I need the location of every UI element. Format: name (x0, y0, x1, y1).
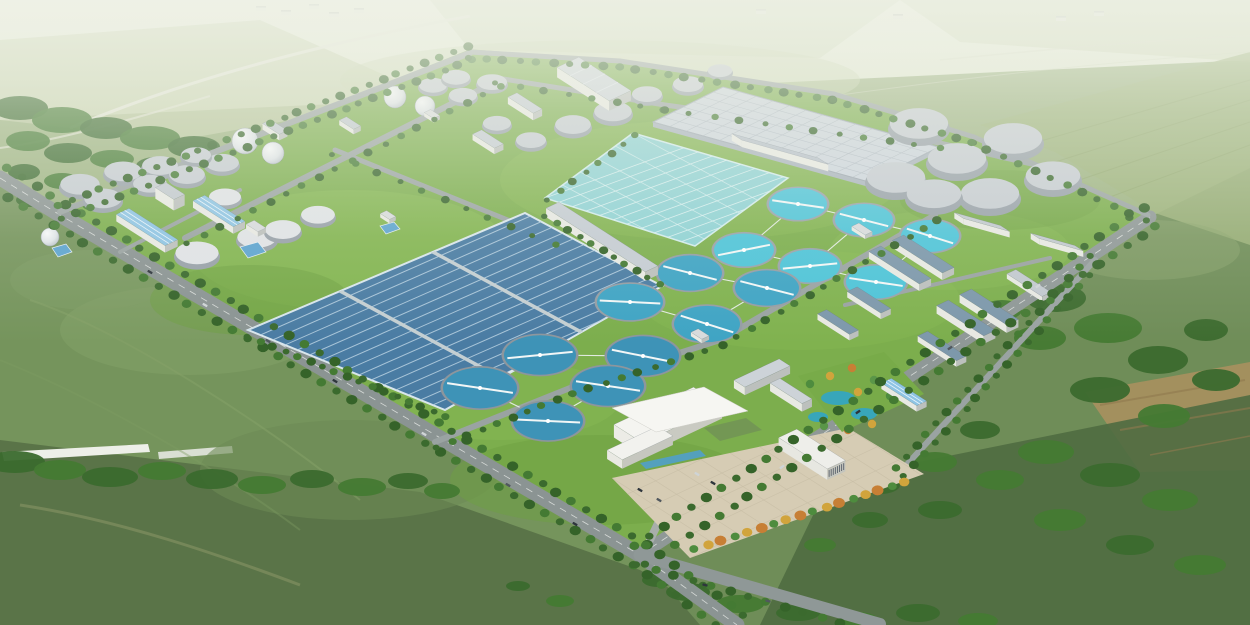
tree (563, 226, 572, 234)
tree (270, 133, 277, 139)
tree (713, 79, 722, 86)
tree (300, 369, 311, 379)
tree (905, 119, 915, 128)
tree (552, 241, 559, 247)
tree (1054, 306, 1061, 312)
tree (651, 566, 660, 574)
tree (182, 152, 191, 159)
tree (510, 492, 518, 499)
distant-building-roof (1094, 11, 1104, 13)
tree (669, 561, 680, 571)
distant-building-roof (309, 4, 319, 6)
tree (69, 197, 76, 203)
tree (993, 373, 1000, 379)
forest-clump (976, 470, 1024, 490)
tree (66, 231, 74, 238)
tree (1093, 196, 1100, 202)
tree (725, 587, 736, 596)
tree (1022, 281, 1032, 289)
tree (434, 418, 444, 426)
tree (2, 193, 13, 203)
storage-tank-top (708, 64, 732, 77)
tree (355, 100, 362, 106)
tree (1046, 297, 1055, 304)
tree (941, 427, 951, 436)
tree (802, 454, 812, 462)
tree (293, 353, 301, 360)
tree (668, 571, 679, 580)
storage-tank-top (175, 241, 218, 264)
forest-clump (1138, 404, 1190, 428)
tree (697, 611, 707, 619)
tree (718, 341, 728, 349)
tree (599, 544, 607, 551)
tree (537, 402, 545, 409)
tree (238, 305, 249, 315)
tree (818, 445, 826, 452)
tree (934, 367, 944, 375)
tree (138, 169, 147, 176)
tree (270, 323, 278, 330)
tree (553, 220, 561, 227)
clarifier-hub (688, 271, 692, 275)
tree (431, 117, 437, 122)
clarifier-hub (742, 248, 746, 252)
tree (283, 127, 293, 136)
tree (739, 612, 747, 619)
tree (300, 340, 310, 348)
tree (1005, 318, 1016, 328)
tree (1139, 203, 1150, 213)
tree (244, 334, 251, 340)
tree (833, 498, 845, 508)
tree (412, 124, 421, 132)
tree (1038, 272, 1046, 279)
clarifier-hub (874, 280, 878, 284)
garden-tree (806, 380, 814, 388)
tree (903, 454, 910, 460)
tree (92, 219, 100, 226)
tree (329, 368, 337, 375)
tree (921, 125, 928, 131)
tree (872, 485, 884, 495)
forest-clump (1018, 440, 1074, 464)
tree (992, 329, 1000, 336)
aerial-rendering-stage: Aerial 3D architectural rendering of a l… (0, 0, 1250, 625)
tree (726, 601, 736, 609)
tree (398, 84, 405, 90)
tree (557, 188, 564, 194)
tree (620, 142, 626, 147)
tree (616, 63, 625, 70)
tree (1031, 167, 1041, 176)
tree (415, 403, 425, 411)
tree (1067, 252, 1077, 260)
tree (970, 394, 980, 403)
clarifier-hub (628, 300, 632, 304)
tree (732, 475, 740, 482)
tree (329, 152, 335, 157)
forest-clump (852, 512, 888, 528)
forest-clump (6, 131, 50, 151)
tree (790, 300, 798, 307)
tree (249, 207, 257, 214)
tree (909, 461, 919, 470)
tree (480, 92, 486, 97)
clarifier-hub (765, 286, 769, 290)
tree (741, 492, 752, 502)
tree (918, 376, 929, 386)
tree (114, 192, 124, 201)
tree (699, 521, 710, 531)
clarifier-hub (538, 353, 542, 357)
tree (612, 523, 622, 531)
tree (369, 383, 377, 390)
tree (556, 518, 564, 525)
tree (570, 526, 581, 536)
storage-tank-top (265, 220, 301, 239)
tree (350, 87, 359, 94)
tree (465, 55, 472, 61)
tree (532, 58, 541, 65)
tree (920, 450, 929, 457)
tree (632, 368, 642, 376)
tree (905, 387, 913, 394)
tree (756, 523, 768, 533)
tree (195, 278, 206, 288)
tree (993, 301, 1001, 308)
tree (848, 397, 858, 405)
tree (761, 455, 771, 463)
distant-building-roof (256, 6, 266, 8)
tree (18, 203, 28, 211)
tree (1052, 261, 1063, 271)
tree (540, 509, 550, 517)
tree (778, 309, 785, 315)
tree (701, 493, 712, 503)
tree (1014, 160, 1023, 167)
tree (598, 62, 608, 71)
tree (1013, 350, 1022, 357)
tree (343, 373, 353, 381)
tree (833, 406, 844, 416)
tree (379, 388, 389, 396)
tree (442, 67, 449, 73)
tree (201, 232, 209, 239)
storage-tank-top (961, 178, 1019, 209)
tree (820, 284, 827, 290)
tree (877, 250, 885, 257)
tree (760, 316, 770, 324)
tree (362, 404, 372, 412)
distant-building-roof (281, 10, 291, 12)
tree (748, 325, 756, 332)
tree (227, 326, 237, 334)
tree (509, 413, 519, 421)
tree (266, 198, 275, 206)
tree (703, 540, 713, 549)
storage-tank-top (1026, 161, 1081, 190)
tree (54, 202, 63, 209)
forest-clump (1070, 377, 1130, 403)
tree (153, 164, 160, 170)
tree (2, 164, 12, 172)
storage-tank-top (928, 143, 986, 174)
tree (701, 348, 708, 354)
tree (667, 358, 675, 365)
tree (786, 463, 797, 473)
tree (539, 480, 547, 487)
tree (222, 136, 231, 143)
tree (327, 110, 337, 119)
tree (687, 504, 695, 511)
tree (795, 510, 807, 520)
tree (586, 535, 596, 543)
tree (517, 84, 524, 90)
tree (744, 593, 752, 600)
clarifier-hub (928, 234, 932, 238)
tree (539, 87, 548, 94)
tree (849, 495, 858, 503)
tree (1021, 309, 1031, 317)
tree (198, 309, 206, 316)
tree (315, 349, 323, 356)
tree (763, 121, 769, 126)
tree (1002, 360, 1012, 369)
tree (199, 159, 209, 168)
tree (405, 430, 415, 438)
tree (577, 234, 583, 239)
tree (632, 561, 640, 568)
tree (517, 58, 524, 64)
tree (211, 288, 221, 296)
tree (1014, 330, 1023, 337)
tree (715, 536, 727, 546)
tree (819, 417, 827, 424)
tree (553, 395, 563, 403)
tree (283, 191, 289, 196)
tree (889, 396, 899, 404)
tree (808, 507, 817, 515)
tree (769, 520, 778, 528)
tree (50, 221, 60, 229)
tree (822, 503, 832, 512)
tree (937, 145, 944, 151)
tree (186, 166, 193, 172)
tree (123, 264, 134, 274)
tree (862, 259, 869, 265)
tree (831, 434, 842, 444)
tree (864, 388, 872, 395)
tree (566, 497, 576, 505)
forest-clump (1184, 319, 1228, 341)
tree (583, 170, 589, 175)
tree (907, 234, 914, 240)
tree (892, 464, 901, 471)
tree (257, 338, 265, 345)
tree (544, 197, 550, 202)
tree (650, 69, 657, 75)
tree (730, 80, 740, 89)
tree (58, 215, 65, 221)
tree (911, 142, 917, 147)
tree (733, 334, 740, 340)
tree (795, 92, 802, 98)
tree (86, 204, 95, 211)
tree (1087, 253, 1094, 259)
tree (110, 180, 117, 186)
tree (331, 166, 337, 171)
forest-clump (546, 595, 574, 607)
tree (938, 130, 947, 137)
tree (484, 214, 491, 220)
clarifier-hub (705, 322, 709, 326)
tree (873, 405, 884, 415)
tree (383, 141, 389, 146)
tree (985, 364, 994, 371)
storage-tank-top (483, 116, 511, 131)
tree (780, 602, 791, 611)
tree (679, 73, 689, 82)
forest-clump (1128, 346, 1188, 374)
tree (1003, 341, 1013, 350)
tree (523, 471, 533, 479)
tree (952, 417, 961, 424)
tree (860, 105, 870, 114)
tree (1037, 300, 1045, 307)
tree (803, 426, 813, 434)
tree (497, 56, 507, 65)
tree (976, 338, 986, 346)
tree (993, 353, 1000, 359)
tree (77, 238, 88, 248)
tree (229, 150, 236, 156)
gas-holder-sphere (262, 142, 284, 164)
tree (165, 262, 175, 270)
storage-tank-top (632, 86, 662, 102)
tree (611, 254, 617, 259)
tree (920, 225, 928, 232)
tree (779, 88, 789, 97)
tree (379, 75, 389, 84)
tree (342, 105, 351, 112)
tree (139, 273, 149, 281)
tree (978, 310, 988, 318)
tree (315, 173, 324, 181)
tree (932, 440, 939, 446)
tree (451, 457, 461, 465)
forest-clump (34, 460, 86, 480)
tree (255, 138, 264, 145)
tree (298, 182, 306, 189)
tree (32, 182, 43, 192)
tree (689, 545, 698, 553)
tree (1064, 274, 1074, 283)
tree (935, 339, 945, 347)
tree (335, 92, 345, 101)
tree (964, 406, 971, 412)
tree (363, 149, 372, 157)
tree (407, 65, 414, 71)
forest-clump (1080, 463, 1140, 487)
tree (981, 383, 990, 390)
tree (314, 117, 321, 123)
tree (912, 441, 922, 450)
tree (550, 488, 561, 498)
tree (886, 137, 895, 144)
tree (463, 206, 469, 211)
tree (712, 591, 723, 601)
forest-clump (804, 538, 836, 552)
tree (1057, 286, 1064, 292)
tree (1143, 217, 1150, 223)
tree (613, 98, 622, 105)
tree (94, 185, 103, 192)
distant-building-roof (893, 14, 903, 16)
tree (389, 421, 400, 431)
distant-building-roof (329, 12, 339, 14)
tree (644, 275, 650, 280)
tree (1150, 222, 1160, 230)
tree (629, 542, 639, 550)
tree (960, 347, 971, 357)
garden-tree (854, 388, 862, 396)
tree (764, 86, 773, 93)
forest-clump (960, 421, 1000, 439)
tree (1047, 175, 1054, 181)
tree (860, 416, 868, 423)
tree (1079, 271, 1087, 278)
tree (383, 89, 392, 96)
forest-clump (1106, 535, 1154, 555)
tree (215, 223, 224, 231)
tree (608, 150, 617, 157)
tree (378, 414, 386, 421)
tree (566, 92, 572, 97)
tree (630, 65, 640, 74)
tree (398, 179, 404, 184)
tree (391, 70, 400, 77)
tree (45, 191, 55, 199)
tree (711, 114, 718, 120)
tree (482, 55, 491, 62)
tree (951, 134, 961, 143)
tree (243, 143, 253, 152)
tree (582, 506, 590, 513)
forest-clump (238, 476, 286, 494)
tree (524, 409, 531, 415)
clarifier-hub (862, 218, 866, 222)
tree (890, 241, 900, 249)
tree (932, 216, 942, 224)
tree (462, 431, 472, 439)
tree (637, 104, 643, 109)
tree (715, 512, 725, 520)
tree (657, 581, 667, 589)
tree (932, 420, 939, 426)
tree (273, 352, 283, 360)
tree (481, 473, 492, 483)
tree (747, 84, 754, 90)
tree (447, 428, 455, 435)
forest-clump (290, 470, 334, 488)
tree (1000, 154, 1007, 160)
tree (875, 111, 882, 117)
tree (372, 169, 381, 176)
tree (1086, 272, 1093, 278)
tree (964, 387, 971, 393)
tree (169, 290, 180, 300)
